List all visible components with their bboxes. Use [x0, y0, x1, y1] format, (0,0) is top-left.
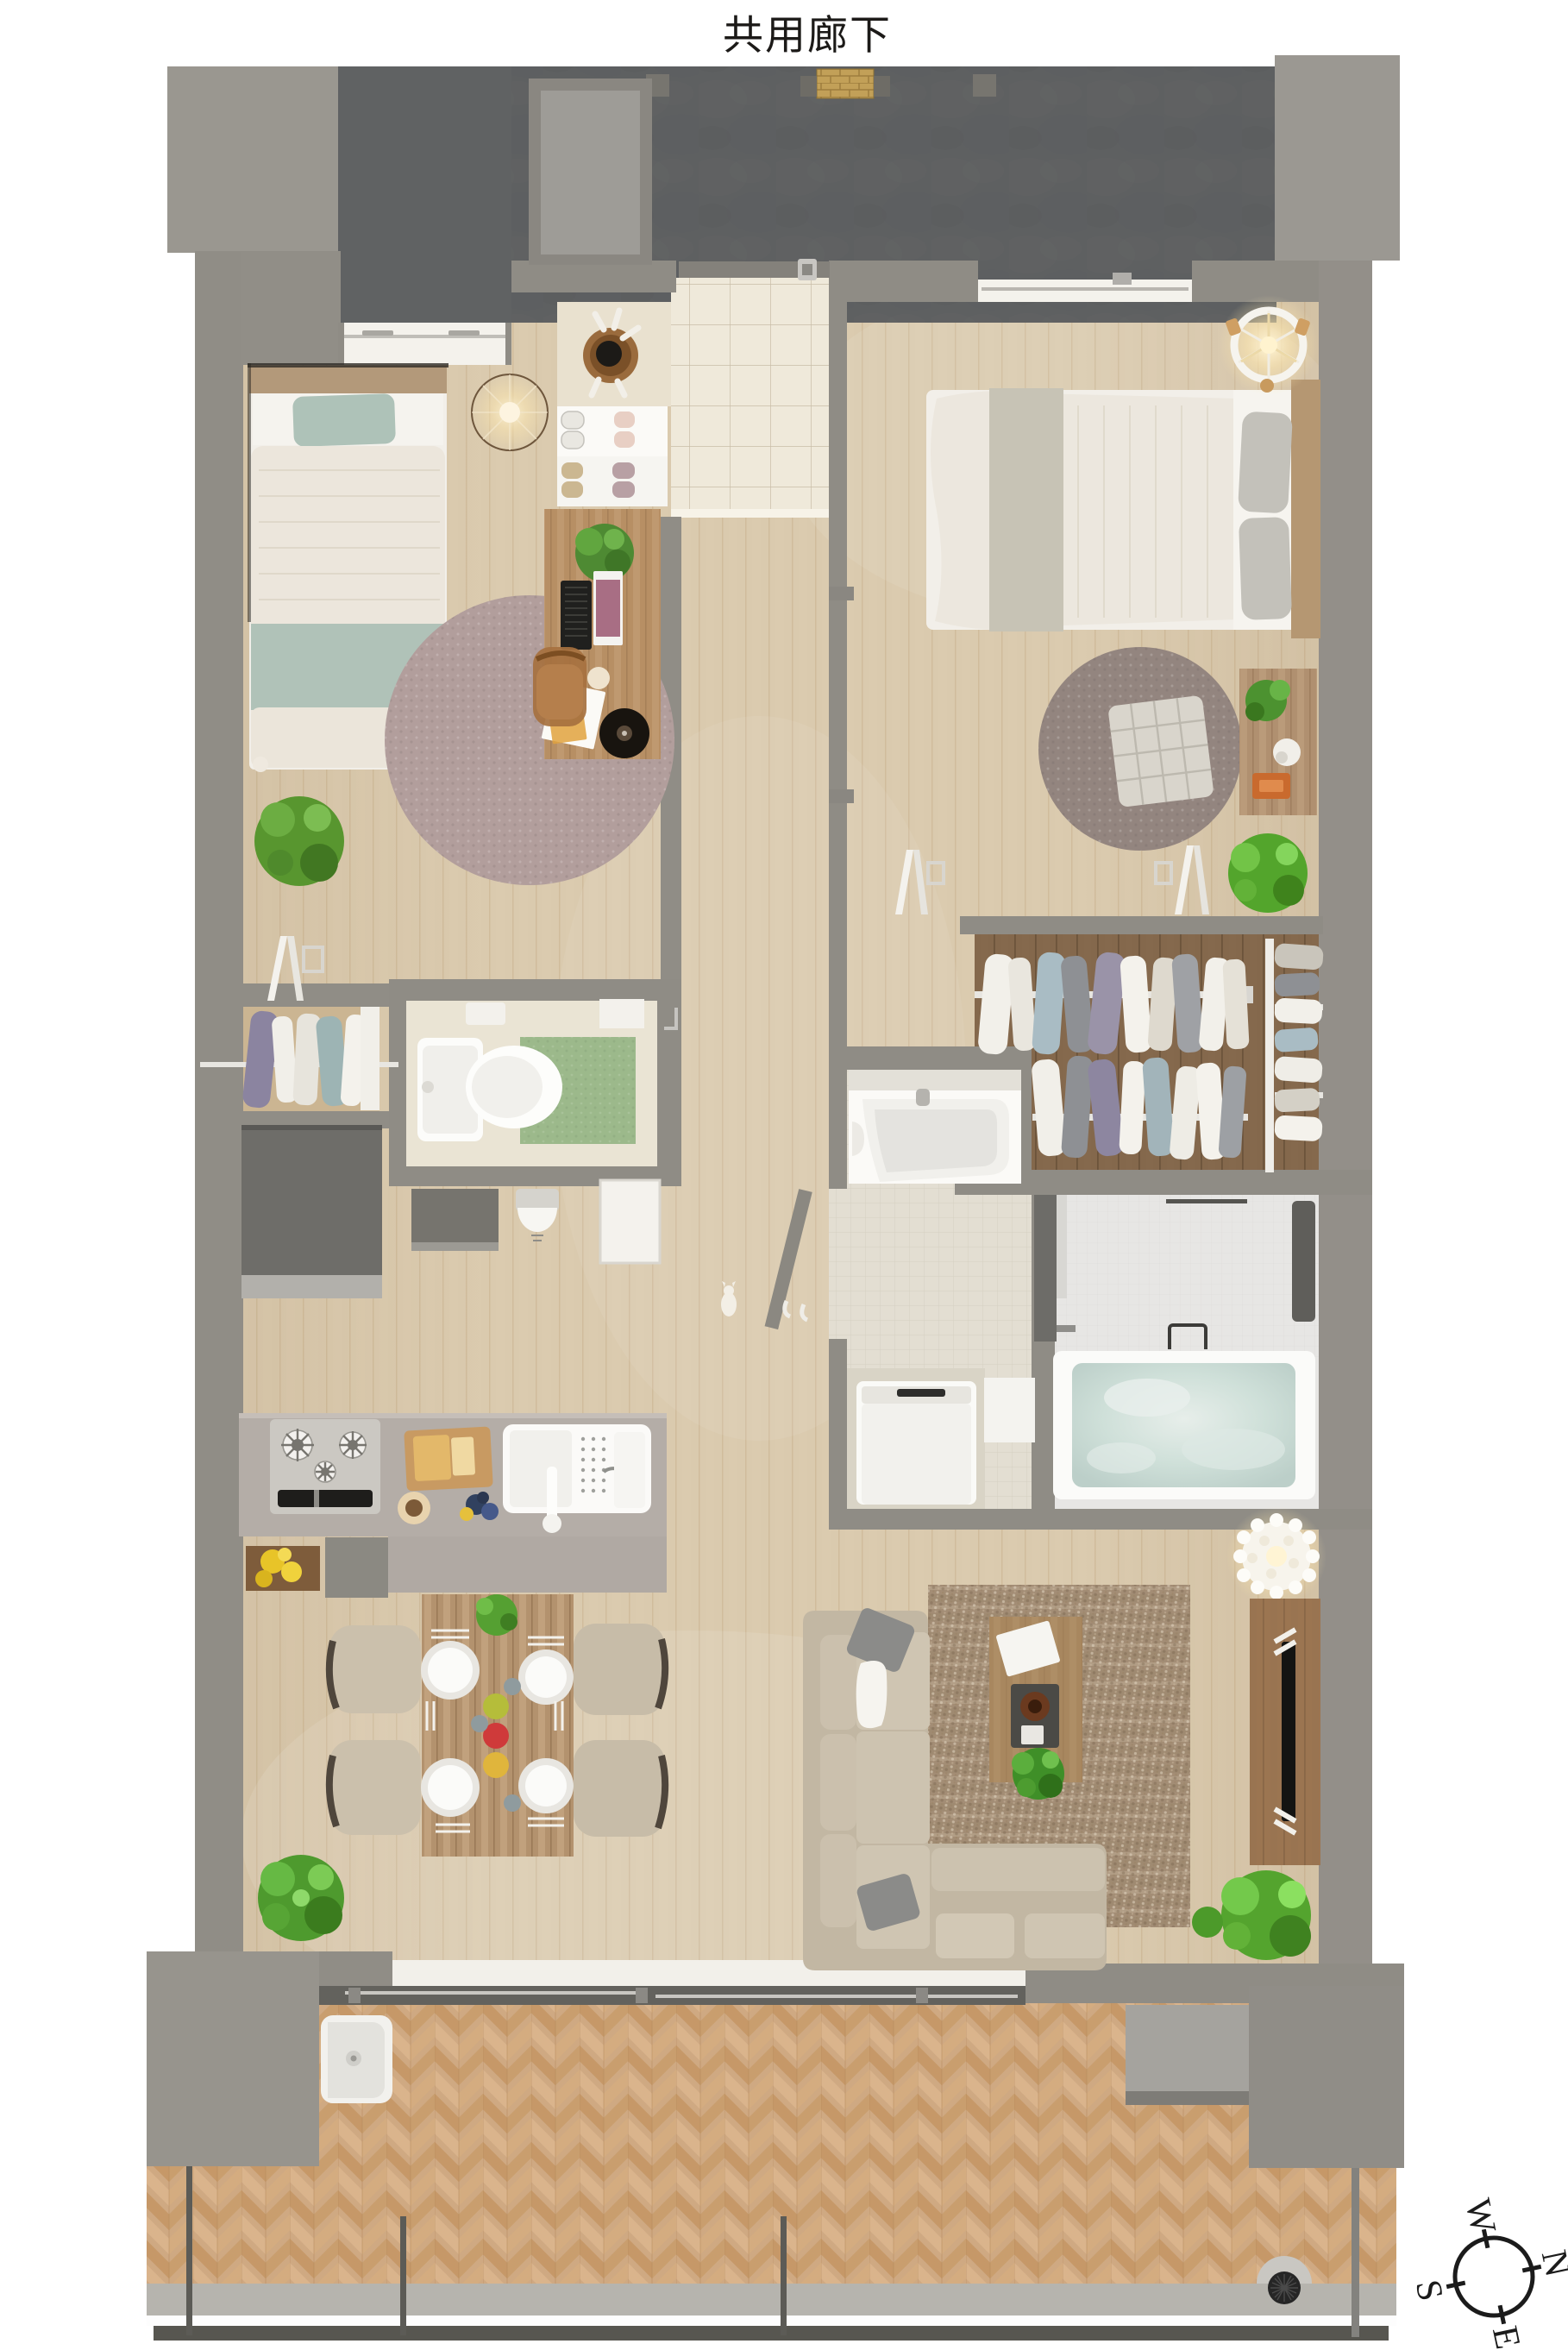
- svg-text:共用廊下: 共用廊下: [723, 14, 892, 59]
